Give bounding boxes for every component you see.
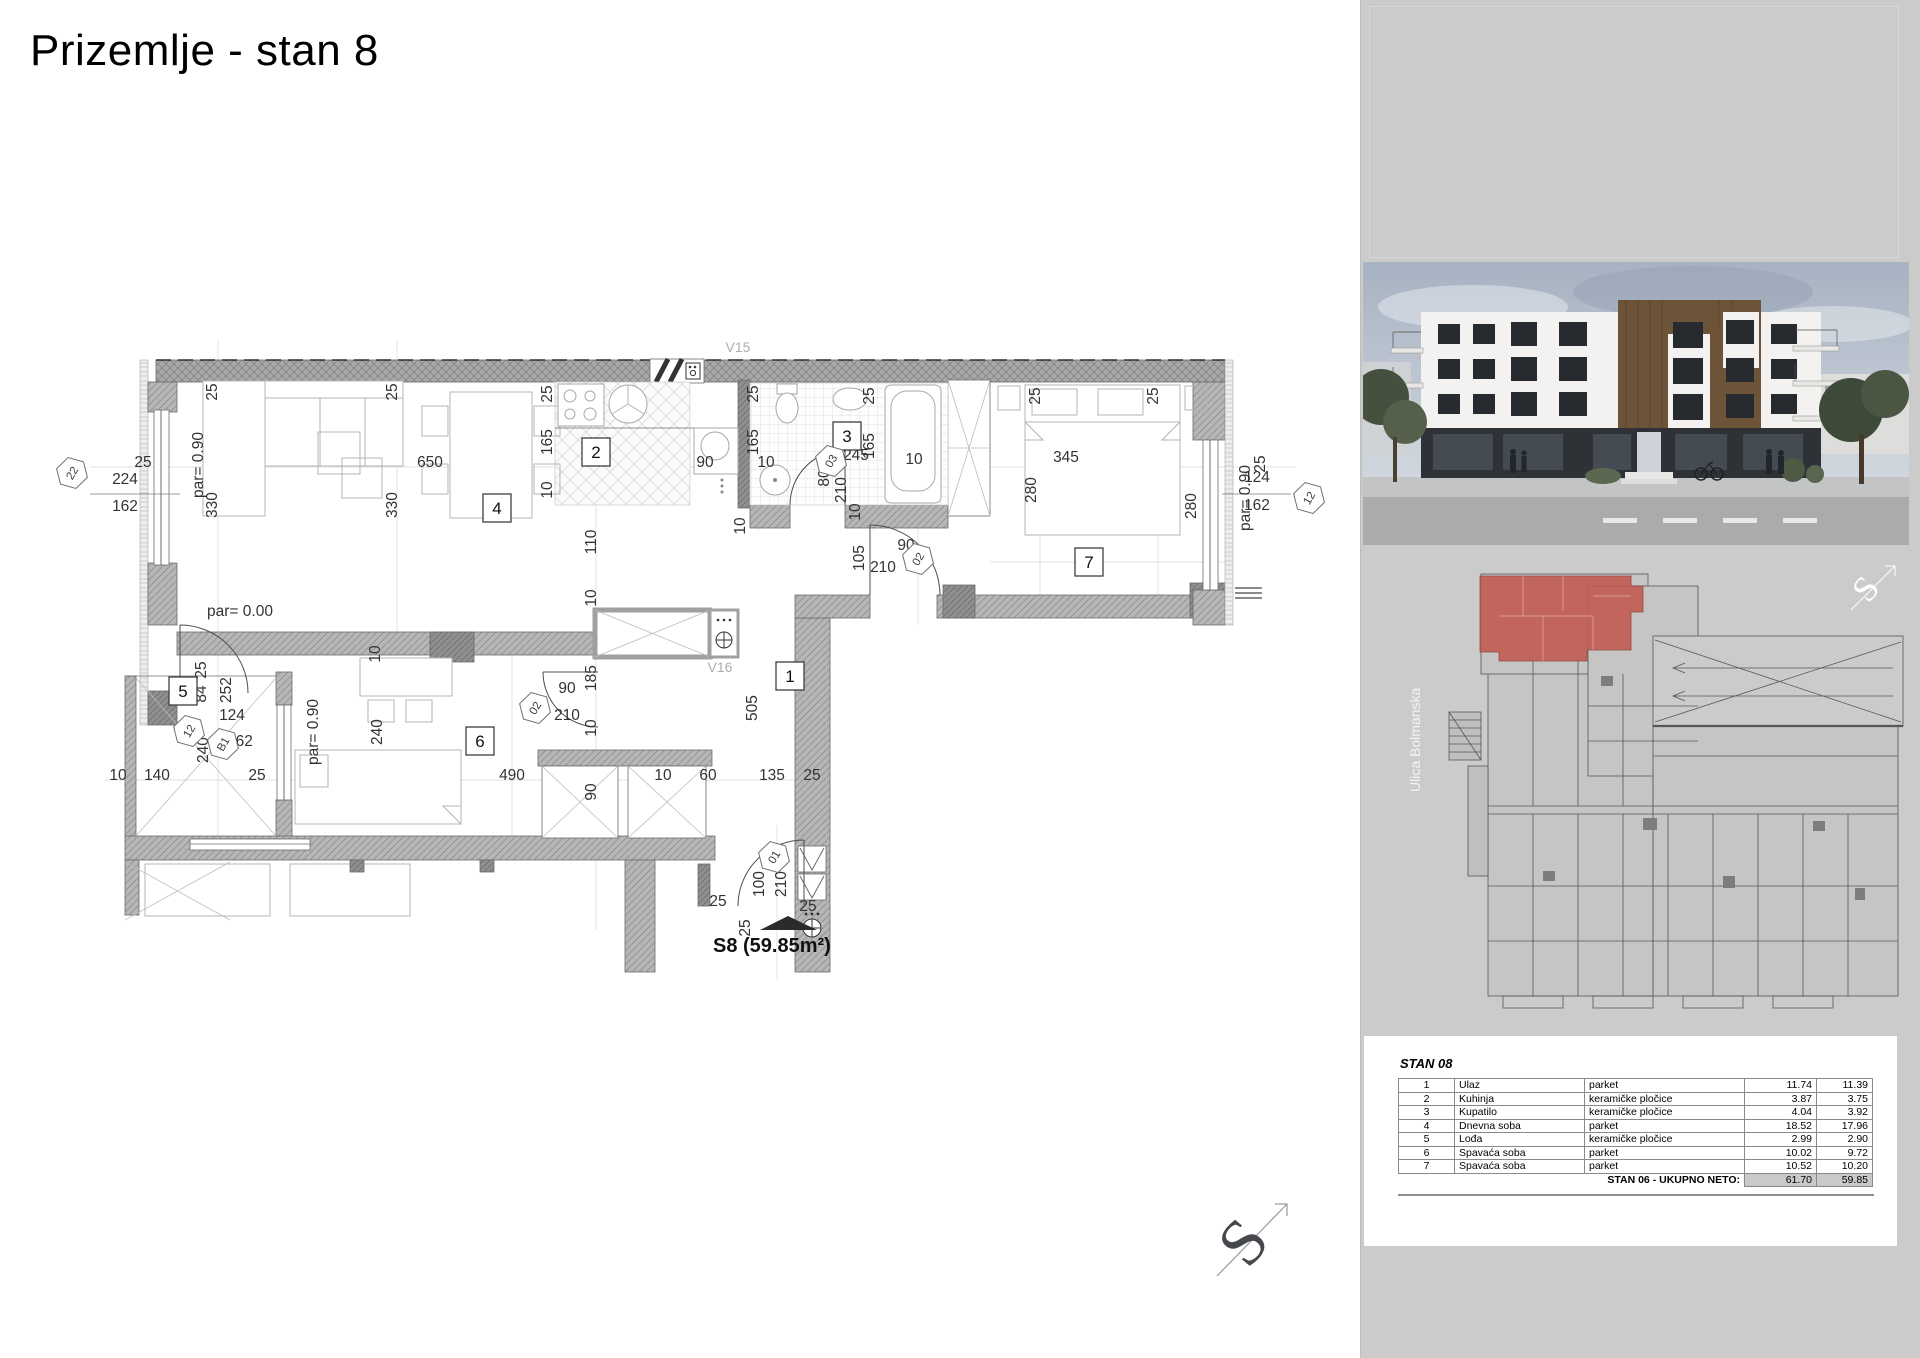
row-number: 4 (1399, 1119, 1455, 1133)
dimension-label: 252 (218, 677, 235, 703)
dimension-label: 100 (751, 871, 768, 897)
dimension-label: 165 (745, 429, 762, 455)
area-gross: 4.04 (1745, 1106, 1817, 1120)
room-number: 5 (169, 677, 197, 705)
floor-finish: parket (1585, 1160, 1745, 1174)
area-gross: 11.74 (1745, 1079, 1817, 1093)
dimension-label: 10 (847, 503, 864, 521)
siteplan-compass-letter: S (1844, 568, 1888, 609)
room-name: Lođa (1455, 1133, 1585, 1147)
dimension-label: 240 (369, 719, 386, 745)
dimension-label: 110 (583, 529, 600, 554)
highlighted-unit (1480, 576, 1643, 661)
dimension-label: 25 (204, 383, 221, 400)
vent-label: V16 (708, 659, 733, 675)
floor-finish: parket (1585, 1146, 1745, 1160)
vent-label: V15 (726, 339, 751, 355)
room-name: Spavaća soba (1455, 1160, 1585, 1174)
table-row: 7Spavaća sobaparket10.5210.20 (1399, 1160, 1873, 1174)
dimension-label: 25 (799, 898, 816, 915)
area-gross: 18.52 (1745, 1119, 1817, 1133)
area-gross: 10.52 (1745, 1160, 1817, 1174)
dimension-label: 25 (803, 767, 820, 784)
area-gross: 10.02 (1745, 1146, 1817, 1160)
floor-finish: parket (1585, 1119, 1745, 1133)
dimension-label: 124 (219, 707, 245, 724)
svg-text:5: 5 (178, 682, 187, 701)
total-value-net: 59.85 (1817, 1173, 1873, 1187)
dimension-label: 224 (112, 471, 138, 488)
room-number: 6 (466, 727, 494, 755)
opening-marker: 22 (57, 458, 88, 489)
room-number: 7 (1075, 548, 1103, 576)
row-number: 3 (1399, 1106, 1455, 1120)
opening-marker: 01 (759, 842, 790, 873)
dimension-label: par= 0.90 (190, 432, 207, 498)
svg-text:2: 2 (591, 443, 600, 462)
svg-text:1: 1 (785, 667, 794, 686)
svg-text:4: 4 (492, 499, 501, 518)
dimension-label: 10 (905, 451, 923, 468)
svg-text:7: 7 (1084, 553, 1093, 572)
room-number: 3 (833, 422, 861, 450)
table-row: 4Dnevna sobaparket18.5217.96 (1399, 1119, 1873, 1133)
table-underline (1398, 1194, 1874, 1196)
sidebar-panel: Ulica Bolmanska (1360, 0, 1920, 1358)
svg-text:3: 3 (842, 427, 851, 446)
dimension-label: 25 (1027, 387, 1044, 404)
dimension-label: 140 (144, 767, 170, 784)
dimension-label: 210 (833, 477, 850, 503)
row-number: 5 (1399, 1133, 1455, 1147)
room-number: 1 (776, 662, 804, 690)
dimension-label: 10 (539, 481, 556, 499)
table-row: 5Lođakeramičke pločice2.992.90 (1399, 1133, 1873, 1147)
dimension-label: 280 (1023, 477, 1040, 503)
building-render (1363, 262, 1909, 545)
total-label: STAN 06 - UKUPNO NETO: (1399, 1173, 1745, 1187)
siteplan-compass: S (1839, 552, 1909, 622)
dimension-label: 650 (417, 454, 443, 471)
floor-finish: parket (1585, 1079, 1745, 1093)
room-name: Spavaća soba (1455, 1146, 1585, 1160)
area-net: 3.92 (1817, 1106, 1873, 1120)
dimension-label: 210 (773, 871, 790, 897)
dimension-label: 25 (1145, 387, 1162, 404)
area-net: 3.75 (1817, 1092, 1873, 1106)
opening-marker: B1 (208, 729, 239, 760)
area-net: 11.39 (1817, 1079, 1873, 1093)
dimension-label: 10 (757, 454, 775, 471)
page-title: Prizemlje - stan 8 (30, 26, 379, 76)
dimension-label: 10 (367, 645, 384, 663)
dimension-label: 330 (204, 492, 221, 518)
table-title: STAN 08 (1400, 1056, 1453, 1071)
dimension-label: 210 (870, 559, 896, 576)
room-name: Kupatilo (1455, 1106, 1585, 1120)
dimension-label: 25 (134, 454, 151, 471)
dimension-label: 25 (384, 383, 401, 400)
dimension-label: 90 (558, 680, 576, 697)
sidebar-top-frame (1369, 6, 1899, 258)
floor-finish: keramičke pločice (1585, 1133, 1745, 1147)
area-gross: 3.87 (1745, 1092, 1817, 1106)
dimension-label: 165 (539, 429, 556, 455)
area-table-card: STAN 08 1Ulazparket11.7411.392Kuhinjaker… (1364, 1036, 1897, 1246)
area-net: 10.20 (1817, 1160, 1873, 1174)
total-value-gross: 61.70 (1745, 1173, 1817, 1187)
dimension-label: 162 (1244, 497, 1270, 514)
area-table-body: 1Ulazparket11.7411.392Kuhinjakeramičke p… (1399, 1079, 1873, 1174)
dimension-label: 105 (851, 545, 868, 571)
row-number: 7 (1399, 1160, 1455, 1174)
key-site-plan (1393, 556, 1909, 1034)
dimension-label: 25 (539, 385, 556, 402)
dimension-label: 25 (193, 661, 210, 678)
room-number: 4 (483, 494, 511, 522)
dimension-label: 10 (583, 589, 600, 607)
room-name: Ulaz (1455, 1079, 1585, 1093)
row-number: 6 (1399, 1146, 1455, 1160)
dimension-label: 210 (554, 707, 580, 724)
dimension-label: 90 (583, 783, 600, 801)
table-row: 1Ulazparket11.7411.39 (1399, 1079, 1873, 1093)
dimension-label: 90 (696, 454, 714, 471)
row-number: 2 (1399, 1092, 1455, 1106)
dimension-label: 25 (861, 387, 878, 404)
dimension-label: 162 (112, 498, 138, 515)
area-net: 17.96 (1817, 1119, 1873, 1133)
table-total-row: STAN 06 - UKUPNO NETO: 61.70 59.85 (1399, 1173, 1873, 1187)
dimension-label: 25 (737, 919, 754, 936)
dimension-label: 10 (109, 767, 127, 784)
room-name: Kuhinja (1455, 1092, 1585, 1106)
dimension-label: 490 (499, 767, 525, 784)
dimension-label: par= 0.00 (207, 603, 273, 620)
dimension-label: 25 (745, 385, 762, 402)
svg-text:6: 6 (475, 732, 484, 751)
row-number: 1 (1399, 1079, 1455, 1093)
dimension-label: 345 (1053, 449, 1079, 466)
room-number: 2 (582, 438, 610, 466)
dimension-label: 10 (732, 517, 749, 535)
floor-plan: S8 (59.85m²) 25224162par= 0.903302533025… (50, 280, 1350, 1000)
floor-finish: keramičke pločice (1585, 1092, 1745, 1106)
dimension-label: 330 (384, 492, 401, 518)
dimension-label: 124 (1244, 469, 1270, 486)
opening-marker: 12 (1294, 483, 1325, 514)
dimension-label: 505 (744, 695, 761, 721)
dimension-label: 280 (1183, 493, 1200, 519)
dimension-label: 10 (583, 719, 600, 737)
opening-marker: 02 (520, 693, 551, 724)
compass-letter: S (1204, 1205, 1284, 1280)
north-compass: S (1195, 1180, 1315, 1300)
table-row: 6Spavaća sobaparket10.029.72 (1399, 1146, 1873, 1160)
area-table: 1Ulazparket11.7411.392Kuhinjakeramičke p… (1398, 1078, 1873, 1187)
dimension-label: par= 0.90 (305, 699, 322, 765)
dimension-label: 60 (699, 767, 717, 784)
floor-finish: keramičke pločice (1585, 1106, 1745, 1120)
table-row: 2Kuhinjakeramičke pločice3.873.75 (1399, 1092, 1873, 1106)
unit-area-label: S8 (59.85m²) (713, 935, 831, 957)
area-net: 2.90 (1817, 1133, 1873, 1147)
dimension-label: 165 (861, 433, 878, 459)
area-gross: 2.99 (1745, 1133, 1817, 1147)
dimension-label: 135 (759, 767, 785, 784)
dimension-label: 185 (583, 665, 600, 691)
area-net: 9.72 (1817, 1146, 1873, 1160)
table-row: 3Kupatilokeramičke pločice4.043.92 (1399, 1106, 1873, 1120)
dimension-label: 25 (709, 893, 726, 910)
room-name: Dnevna soba (1455, 1119, 1585, 1133)
dimension-label: 25 (248, 767, 265, 784)
dimension-label: 10 (654, 767, 672, 784)
